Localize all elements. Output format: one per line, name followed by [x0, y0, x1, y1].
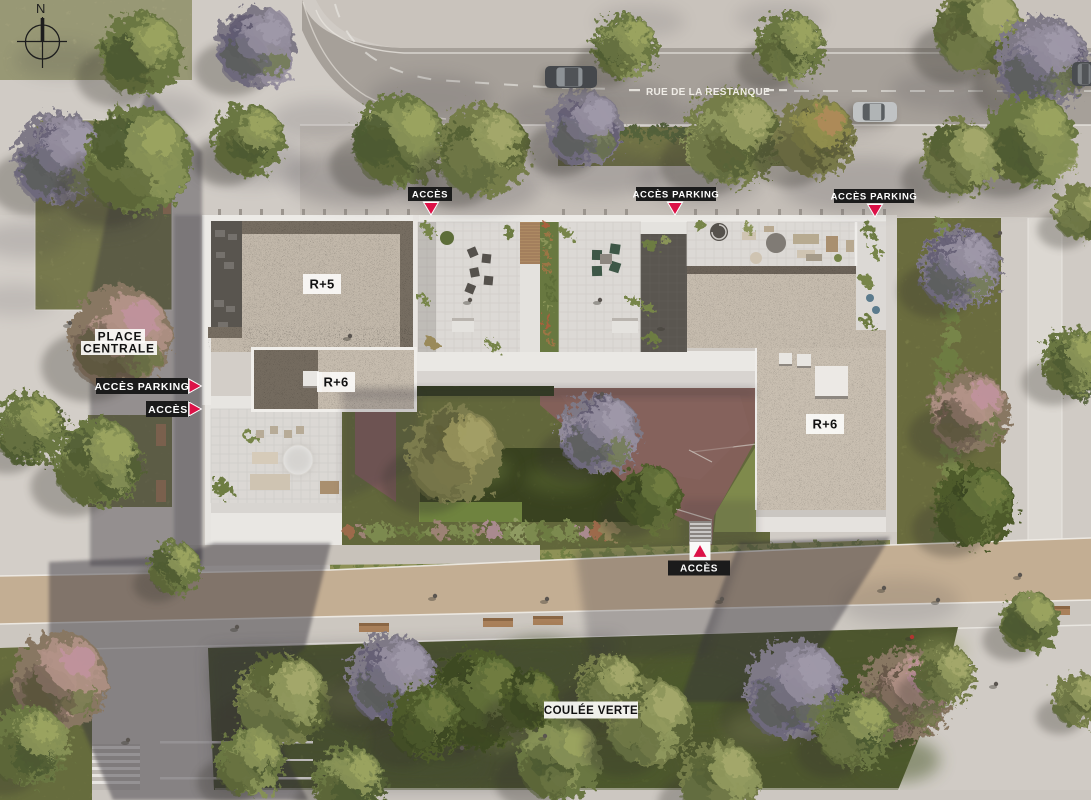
svg-text:R+5: R+5: [309, 277, 334, 292]
svg-text:ACCÈS PARKING: ACCÈS PARKING: [633, 189, 720, 200]
svg-text:ACCÈS PARKING: ACCÈS PARKING: [831, 191, 918, 202]
svg-text:ACCÈS: ACCÈS: [412, 189, 448, 200]
svg-text:ACCÈS: ACCÈS: [148, 403, 188, 416]
svg-text:CENTRALE: CENTRALE: [83, 341, 155, 355]
svg-text:R+6: R+6: [812, 417, 837, 432]
svg-text:RUE DE LA RESTANQUE: RUE DE LA RESTANQUE: [646, 87, 770, 98]
svg-text:COULÉE VERTE: COULÉE VERTE: [544, 704, 638, 717]
svg-text:N: N: [36, 1, 45, 16]
svg-text:R+6: R+6: [323, 375, 348, 390]
svg-text:ACCÈS: ACCÈS: [680, 562, 718, 575]
svg-text:ACCÈS PARKING: ACCÈS PARKING: [94, 380, 189, 393]
